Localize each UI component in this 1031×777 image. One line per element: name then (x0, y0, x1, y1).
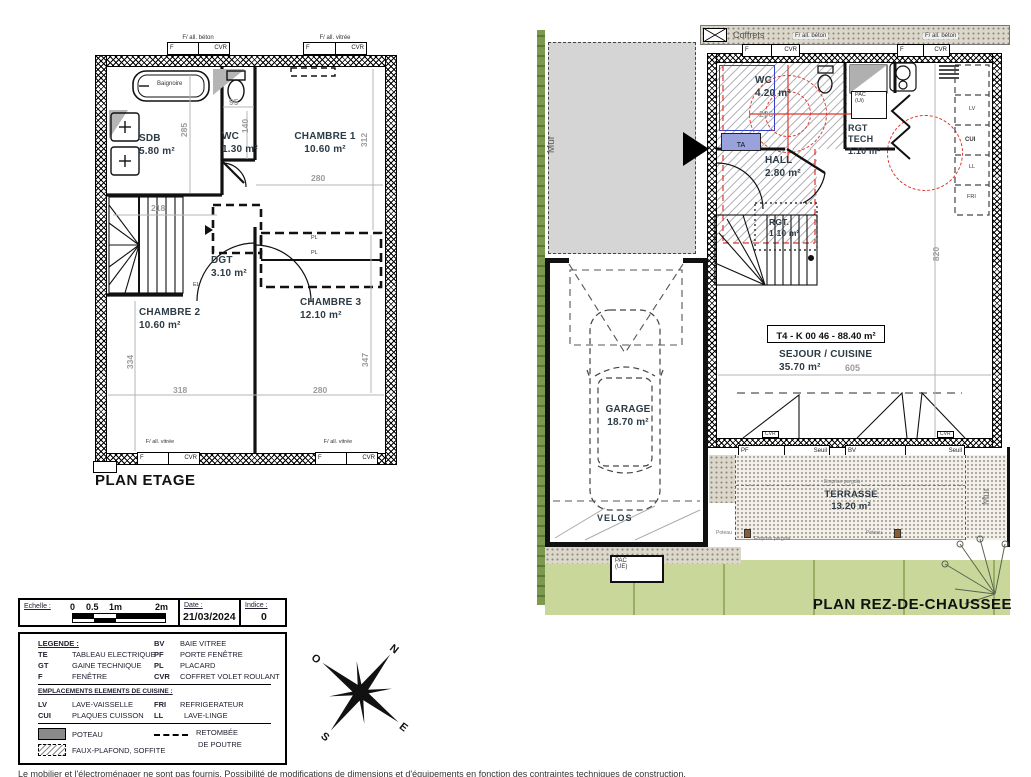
unit-label-box: T4 - K 00 46 - 88.40 m² (767, 325, 885, 343)
mur-label: Mur (546, 136, 557, 153)
legend-desc: PLAQUES CUISSON (72, 711, 144, 720)
beton-label: F/ all. béton (923, 33, 958, 39)
mur-right-edge (1007, 447, 1010, 547)
retombee-desc-1: RETOMBÉE (196, 728, 238, 737)
dim-ch2-h: 334 (125, 355, 135, 369)
tag-f: F (168, 43, 198, 54)
compass-n: N (387, 642, 401, 656)
poteau-swatch (38, 728, 66, 740)
kitchen-lv: LV (969, 107, 975, 113)
legend-abbr: LV (38, 700, 47, 709)
rdc-window-tag-top-left: FCVR (742, 44, 800, 57)
room-ch3: CHAMBRE 312.10 m² (300, 297, 361, 322)
legend-desc: GAINE TECHNIQUE (72, 661, 141, 670)
el-label: EL (193, 283, 200, 289)
compass-e: E (397, 721, 410, 735)
dim-ch1-w: 280 (311, 173, 325, 183)
date-value: 21/03/2024 (183, 611, 236, 623)
room-garage: GARAGE18.70 m² (593, 404, 663, 429)
poteau-label: Poteau (716, 531, 732, 536)
legend-desc: TABLEAU ELECTRIQUE (72, 650, 156, 659)
tag-cvr: CVR (198, 43, 229, 54)
compass-s: S (318, 730, 331, 744)
scale-tick-1m: 1m (109, 602, 122, 612)
kitchen-cui: CUI (965, 137, 975, 143)
room-sdb: SDB5.80 m² (139, 133, 175, 158)
placard (261, 233, 381, 287)
scale-tick-0: 0 (70, 602, 75, 612)
etage-window-tag-bottom-left: FCVR (137, 452, 200, 465)
tag-f: F (316, 453, 346, 464)
legend-desc: LAVE-LINGE (184, 711, 228, 720)
scale-seg (116, 618, 165, 622)
coffrets-strip: Coffrets F/ all. béton F/ all. béton (700, 25, 1010, 45)
cvr-chip: CVR (762, 431, 779, 438)
dim-wc-rdc: 296 (759, 109, 773, 119)
tag-f: F (304, 43, 335, 54)
pergola-line (736, 485, 966, 486)
tag-cvr: CVR (335, 43, 367, 54)
etage-window-tag-top-left: FCVR (167, 42, 230, 55)
dim-rdc-h: 820 (931, 247, 941, 261)
legend-divider (38, 684, 271, 685)
indice-label: Indice : (245, 602, 268, 609)
room-ch1: CHAMBRE 110.60 m² (280, 131, 370, 156)
legend-abbr: CUI (38, 711, 51, 720)
kitchen-fri: FRI (967, 195, 976, 201)
scale-seg (94, 618, 116, 622)
mur-right-strip: Mur (965, 455, 1008, 540)
beton-label: F/ all. béton (793, 33, 828, 39)
pac-ui-box: PAC (Ui) (851, 91, 887, 119)
legend-abbr: TE (38, 650, 48, 659)
stairs-icon (109, 197, 183, 293)
compass-o: O (309, 652, 323, 667)
room-rgt: RGT.1,10 m² (769, 217, 800, 238)
cvr-chip: CVR (937, 431, 954, 438)
entrance-arrow-icon (683, 132, 709, 166)
compass-rose: N E S O (298, 630, 423, 755)
legend-abbr: PF (154, 650, 164, 659)
poteau-post (744, 529, 751, 538)
room-dgt: DGT3.10 m² (211, 255, 247, 280)
scale-box: Echelle : 0 0.5 1m 2m (18, 598, 180, 627)
dim-ch1-h: 312 (359, 133, 369, 147)
etage-window-label-top-right: F/ all. vitrée (290, 35, 380, 41)
rdc-house: WC4.20 m² 296 TA HALL2.80 m² PAC (Ui) RG… (707, 53, 1002, 448)
echelle-label: Echelle : (24, 603, 51, 610)
etage-window-label-bottom-right: F/ all. vitrée (293, 440, 383, 446)
pergola-label-bottom: Emprise pergola (754, 537, 790, 542)
date-label: Date : (184, 602, 203, 609)
dim-ch3-h: 347 (360, 353, 370, 367)
legend-desc: COFFRET VOLET ROULANT (180, 672, 280, 681)
indice-value: 0 (261, 611, 267, 623)
etage-window-label-bottom-left: F/ all. vitrée (115, 440, 205, 446)
legend-abbr: LL (154, 711, 163, 720)
plan-rdc: PAC (UE) Coffrets F/ all. béton F/ all. … (537, 22, 1015, 622)
ta-box: TA (721, 133, 761, 151)
legend-abbr: PL (154, 661, 164, 670)
legend-abbr: FRI (154, 700, 166, 709)
legend-abbr: CVR (154, 672, 170, 681)
dim-wc-h: 140 (240, 119, 250, 133)
scale-tick-2m: 2m (155, 602, 168, 612)
baignoire-label: Baignoire (157, 81, 182, 87)
room-ch2: CHAMBRE 210.60 m² (139, 307, 200, 332)
pergola-label: Emprise pergola (824, 480, 860, 485)
scale-bar (72, 613, 166, 623)
legend-desc: LAVE-VAISSELLE (72, 700, 133, 709)
dgt-duct (205, 205, 261, 253)
dim-sdb-w: 218 (151, 203, 165, 213)
legend-desc: PORTE FENÊTRE (180, 650, 243, 659)
legend-divider (38, 723, 271, 724)
room-terrasse: TERRASSE13.20 m² (796, 489, 906, 513)
dim-sejour-w: 605 (845, 363, 860, 373)
pl-label: PL (311, 251, 318, 257)
legend-desc: FENÊTRE (72, 672, 107, 681)
legend-box: LEGENDE : TE TABLEAU ELECTRIQUE GT GAINE… (18, 632, 287, 765)
dim-ch3-w: 280 (313, 385, 327, 395)
date-box: Date : 21/03/2024 (180, 598, 241, 627)
etage-window-tag-bottom-right: FCVR (315, 452, 378, 465)
etage-window-tag-top-right: FCVR (303, 42, 367, 55)
kitchen-ll: LL (969, 165, 975, 171)
tag-cvr: CVR (168, 453, 199, 464)
legend-abbr: F (38, 672, 43, 681)
poteau-post (894, 529, 901, 538)
tag-cvr: CVR (346, 453, 377, 464)
plan-etage-title: PLAN ETAGE (95, 472, 196, 489)
floor-plan-sheet: F/ all. béton F/ all. vitrée FCVR FCVR (0, 0, 1031, 777)
sand-patch (709, 455, 735, 503)
footer-disclaimer: Le mobilier et l'électroménager ne sont … (18, 769, 1018, 777)
coffrets-icon (703, 28, 727, 42)
legend-abbr: BV (154, 639, 164, 648)
scale-seg (73, 618, 94, 622)
poteau-desc: POTEAU (72, 730, 103, 739)
rdc-window-tag-top-right: FCVR (897, 44, 950, 57)
room-wc: WC1.30 m² (222, 131, 258, 156)
cuisine-title: EMPLACEMENTS ELEMENTS DE CUISINE : (38, 688, 173, 695)
garage: GARAGE18.70 m² VELOS (545, 258, 708, 547)
legend-desc: PLACARD (180, 661, 215, 670)
room-wc-rdc: WC4.20 m² (755, 75, 791, 100)
retombee-symbol (154, 734, 188, 736)
faux-plafond-swatch (38, 744, 66, 756)
tag-f: F (138, 453, 168, 464)
etage-window-label-top-left: F/ all. béton (153, 35, 243, 41)
coffrets-label: Coffrets (733, 30, 764, 40)
toilet-icon (818, 66, 833, 93)
retombee-desc-2: DE POUTRE (198, 740, 242, 749)
room-hall: HALL2.80 m² (765, 155, 801, 180)
legend-desc: BAIE VITREE (180, 639, 226, 648)
rdc-left-edge (537, 30, 545, 605)
legend-title: LEGENDE : (38, 639, 79, 648)
velos-label: VELOS (597, 513, 633, 524)
dim-ch2-w: 318 (173, 385, 187, 395)
room-rgt-tech: RGT TECH 1.10 m² (848, 123, 880, 157)
dim-sdb-h: 285 (179, 123, 189, 137)
mur-block: Mur (548, 42, 696, 254)
faux-plafond-desc: FAUX-PLAFOND, SOFFITE (72, 746, 165, 755)
scale-tick-05: 0.5 (86, 602, 99, 612)
legend-desc: REFRIGERATEUR (180, 700, 244, 709)
dim-wc-w: 95 (229, 97, 238, 107)
terrasse: Emprise pergola TERRASSE13.20 m² Poteau … (735, 455, 965, 540)
poteau-label: Poteau (866, 531, 882, 536)
plan-etage: F/ all. béton F/ all. vitrée FCVR FCVR (95, 55, 397, 465)
pl-label: PL (311, 236, 318, 242)
plan-rdc-title: PLAN REZ-DE-CHAUSSEE (700, 596, 1012, 613)
garage-linework (545, 258, 708, 547)
mur-right-label: Mur (981, 488, 992, 505)
indice-box: Indice : 0 (241, 598, 287, 627)
pac-ue-box: PAC (UE) (610, 555, 664, 583)
legend-abbr: GT (38, 661, 48, 670)
